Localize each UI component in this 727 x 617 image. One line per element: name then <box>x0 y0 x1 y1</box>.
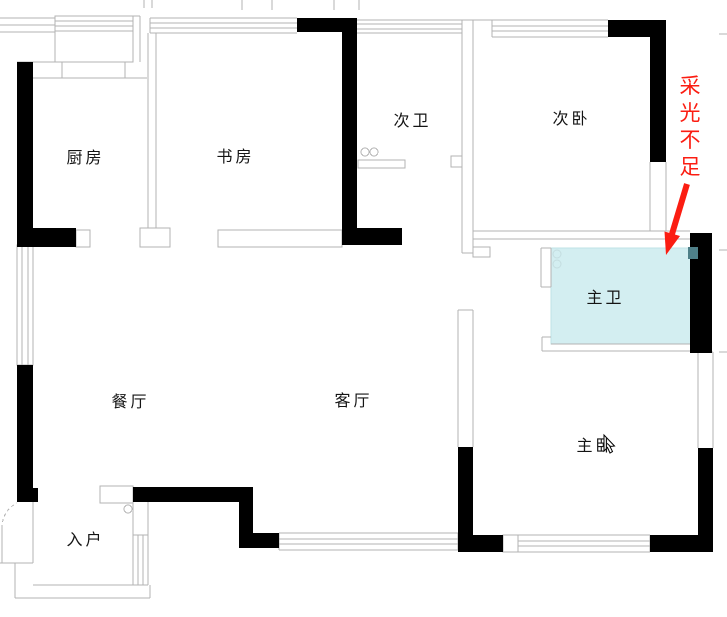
sink-counter <box>358 160 405 168</box>
room-label-second-bath: 次卫 <box>390 107 431 131</box>
insufficient-light-note: 采光不足 <box>677 73 703 181</box>
floorplan-drawing <box>0 0 727 617</box>
room-label-master-bedroom: 主卧 <box>573 432 614 456</box>
floorplan-page: 厨房 书房 次卫 次卧 主卫 餐厅 客厅 主卧 入户 采光不足 <box>0 0 727 617</box>
room-label-study: 书房 <box>213 143 254 167</box>
kitchen-balcony <box>55 16 133 62</box>
insufficient-light-arrow <box>665 184 688 255</box>
west-window <box>17 245 33 365</box>
bath-corner-block <box>688 247 698 259</box>
room-label-entry: 入户 <box>63 526 104 550</box>
room-label-master-bath: 主卫 <box>583 284 624 308</box>
double-sink-icon <box>361 148 369 156</box>
entry-fixture-icon <box>124 505 132 513</box>
room-label-second-bedroom: 次卧 <box>549 105 590 129</box>
room-label-living: 客厅 <box>331 387 372 411</box>
room-label-dining: 餐厅 <box>108 388 149 412</box>
room-label-kitchen: 厨房 <box>63 144 104 168</box>
entry-door-arc <box>2 503 17 528</box>
